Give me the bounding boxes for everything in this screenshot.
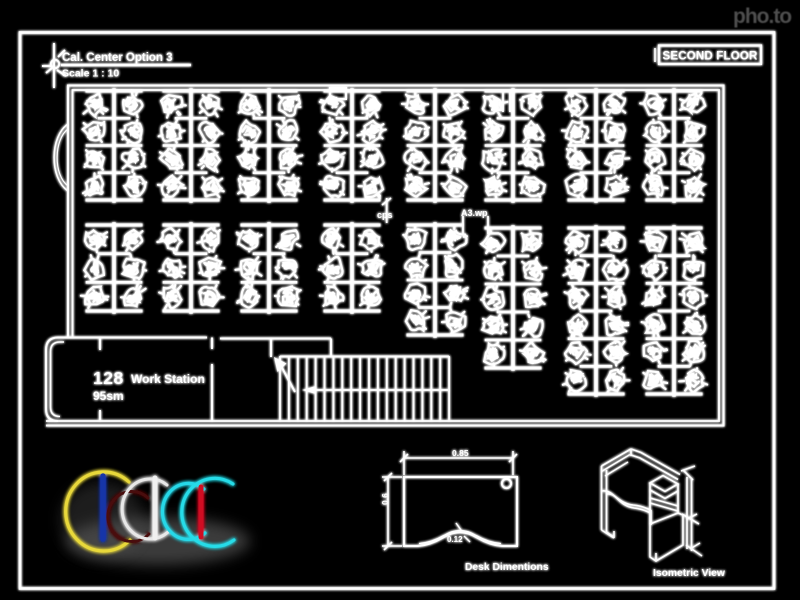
svg-text:Scale 1 : 10: Scale 1 : 10 (62, 68, 119, 80)
svg-text:128: 128 (93, 368, 124, 388)
svg-text:Isometric View: Isometric View (653, 568, 726, 579)
svg-text:0.12: 0.12 (447, 535, 463, 544)
svg-text:0.6: 0.6 (380, 493, 390, 505)
svg-text:A3.wp: A3.wp (461, 208, 488, 218)
svg-text:SECOND FLOOR: SECOND FLOOR (662, 51, 758, 63)
svg-text:pho.to: pho.to (733, 5, 791, 28)
svg-text:Work Station: Work Station (131, 372, 205, 386)
svg-text:cps: cps (377, 210, 393, 220)
svg-text:Cal. Center Option 3: Cal. Center Option 3 (62, 52, 173, 64)
svg-text:Desk Dimentions: Desk Dimentions (465, 562, 549, 573)
svg-text:0.85: 0.85 (452, 448, 469, 458)
svg-text:95sm: 95sm (93, 389, 124, 403)
